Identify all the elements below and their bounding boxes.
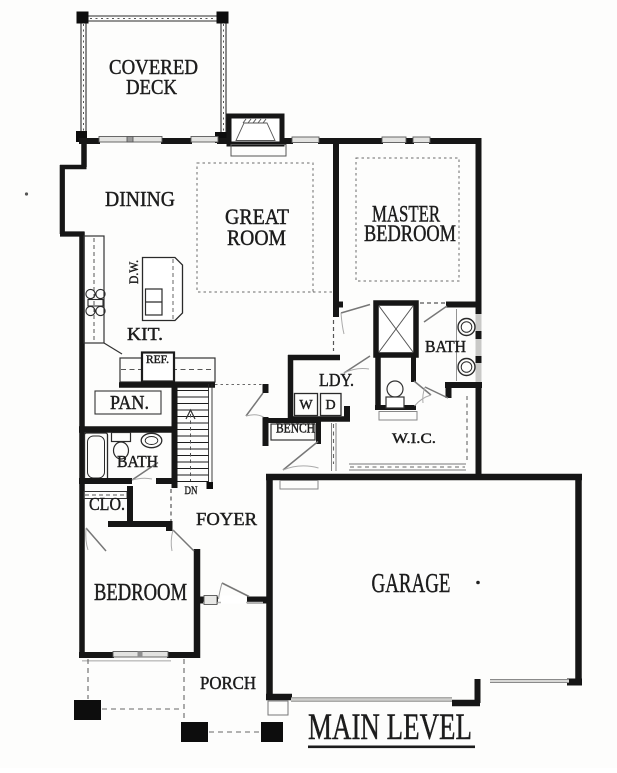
svg-text:BEDROOM: BEDROOM <box>94 580 187 606</box>
svg-text:CLO.: CLO. <box>89 494 125 514</box>
svg-text:BEDROOM: BEDROOM <box>364 221 456 246</box>
svg-text:FOYER: FOYER <box>196 509 257 529</box>
svg-text:LDY.: LDY. <box>319 370 354 390</box>
svg-text:ROOM: ROOM <box>227 225 286 250</box>
svg-text:PORCH: PORCH <box>200 673 256 693</box>
svg-text:MAIN LEVEL: MAIN LEVEL <box>308 707 472 748</box>
svg-text:BATH: BATH <box>425 337 466 356</box>
svg-text:PAN.: PAN. <box>110 393 149 414</box>
svg-text:BATH: BATH <box>117 452 158 471</box>
svg-text:W: W <box>299 398 313 413</box>
svg-text:DN: DN <box>185 483 198 497</box>
svg-text:BENCH: BENCH <box>276 422 315 437</box>
svg-text:W.I.C.: W.I.C. <box>392 431 436 447</box>
svg-text:D.W.: D.W. <box>126 260 141 284</box>
svg-text:DECK: DECK <box>126 75 177 99</box>
svg-text:KIT.: KIT. <box>127 324 163 344</box>
svg-text:REF.: REF. <box>146 354 169 366</box>
svg-text:DINING: DINING <box>105 187 175 211</box>
svg-text:GARAGE: GARAGE <box>372 568 451 598</box>
svg-text:D: D <box>325 398 335 413</box>
